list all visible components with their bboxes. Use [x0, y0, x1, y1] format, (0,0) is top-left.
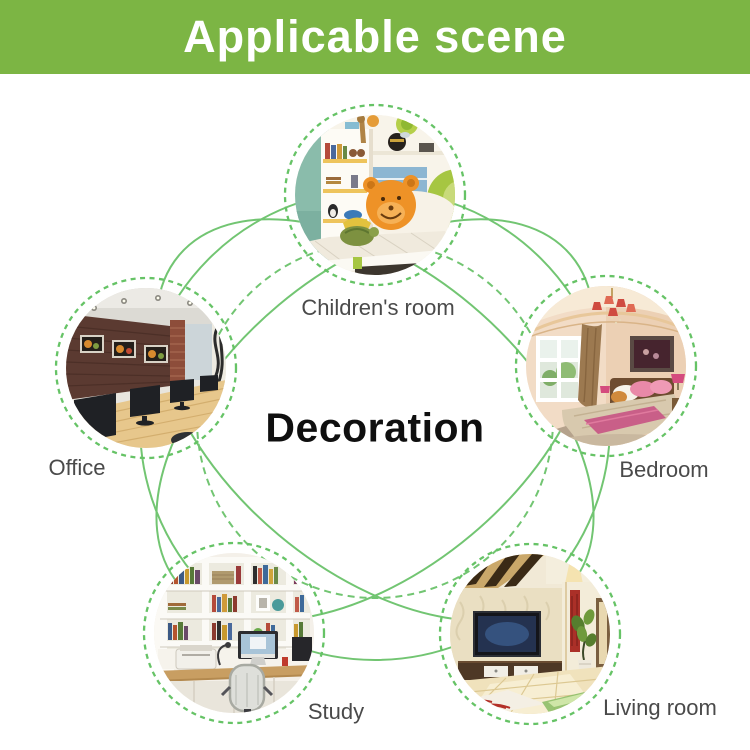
office-illustration — [66, 288, 226, 448]
study-label: Study — [308, 699, 364, 725]
living-room-photo — [450, 554, 610, 714]
center-title: Decoration — [265, 405, 484, 452]
bedroom-illustration — [526, 286, 686, 446]
study-photo — [154, 553, 314, 713]
children-room-photo — [295, 115, 455, 275]
living-room-label: Living room — [603, 695, 717, 721]
bedroom-label: Bedroom — [619, 457, 708, 483]
children-room-label: Children's room — [301, 295, 454, 321]
living-room-illustration — [450, 554, 610, 714]
office-photo — [66, 288, 226, 448]
office-label: Office — [48, 455, 105, 481]
product-infographic: Applicable scene — [0, 0, 750, 750]
children-room-illustration — [295, 115, 455, 275]
study-illustration — [154, 553, 314, 713]
bedroom-photo — [526, 286, 686, 446]
